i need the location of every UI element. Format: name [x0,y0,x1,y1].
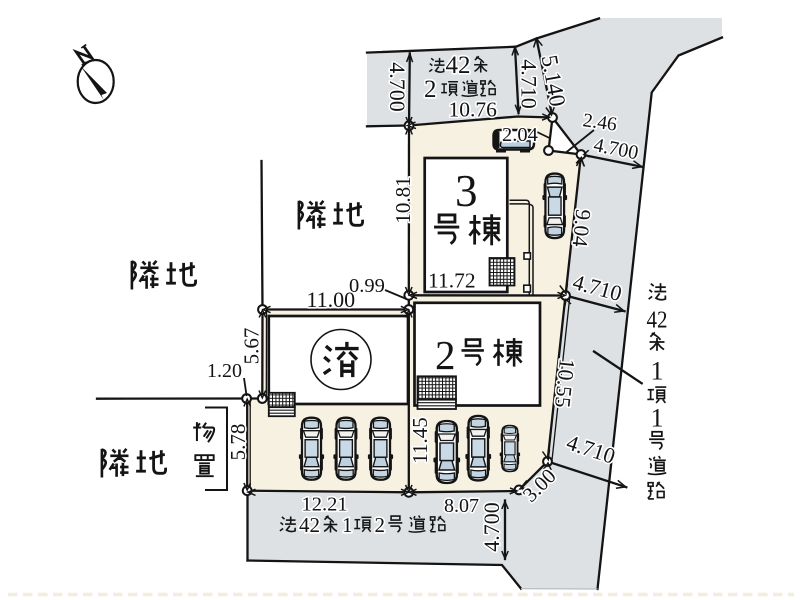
svg-text:2: 2 [375,513,386,537]
svg-text:12.21: 12.21 [302,494,348,516]
svg-text:5.78: 5.78 [226,424,250,461]
svg-text:10.81: 10.81 [391,176,415,223]
svg-text:11.72: 11.72 [428,269,476,293]
svg-text:2: 2 [435,332,456,378]
svg-text:1: 1 [651,357,664,386]
svg-text:4.700: 4.700 [479,502,504,552]
svg-text:10.76: 10.76 [449,98,498,122]
svg-text:3: 3 [455,166,478,216]
svg-text:11.00: 11.00 [307,287,356,312]
svg-text:1.20: 1.20 [207,360,242,382]
svg-text:1: 1 [342,513,353,537]
svg-text:2.04: 2.04 [502,124,538,146]
svg-text:42: 42 [647,308,668,334]
svg-text:1: 1 [651,404,664,433]
svg-text:5.67: 5.67 [240,328,264,365]
svg-text:2: 2 [424,76,437,103]
svg-text:9.04: 9.04 [568,208,596,248]
svg-text:42: 42 [446,52,471,79]
svg-text:8.07: 8.07 [444,495,479,517]
svg-text:10.55: 10.55 [550,357,580,409]
svg-text:11.45: 11.45 [408,417,432,463]
svg-text:42: 42 [299,513,320,537]
svg-text:4.710: 4.710 [517,59,542,109]
svg-text:4.700: 4.700 [385,62,410,112]
